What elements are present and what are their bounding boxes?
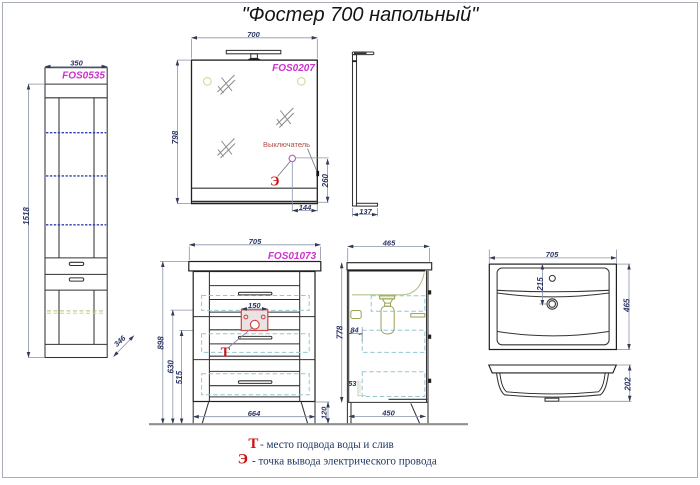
- svg-text:705: 705: [546, 250, 559, 259]
- svg-text:350: 350: [70, 59, 83, 68]
- svg-text:515: 515: [175, 370, 184, 384]
- svg-text:Т: Т: [221, 346, 231, 361]
- svg-text:137: 137: [359, 207, 372, 216]
- svg-text:120: 120: [320, 406, 329, 419]
- svg-text:705: 705: [249, 237, 262, 246]
- svg-text:630: 630: [166, 360, 175, 374]
- svg-text:202: 202: [623, 377, 632, 392]
- svg-text:Э: Э: [238, 452, 248, 468]
- svg-text:798: 798: [171, 130, 180, 144]
- svg-text:84: 84: [350, 325, 359, 334]
- svg-text:664: 664: [248, 409, 261, 418]
- svg-text:465: 465: [623, 298, 632, 313]
- svg-text:Выключатель: Выключатель: [263, 140, 310, 149]
- svg-text:150: 150: [248, 301, 261, 310]
- svg-text:778: 778: [335, 325, 344, 339]
- svg-text:- место подвода воды и слив: - место подвода воды и слив: [260, 439, 394, 451]
- svg-text:215: 215: [536, 277, 545, 292]
- svg-text:1518: 1518: [22, 207, 31, 225]
- svg-text:700: 700: [247, 30, 260, 39]
- svg-text:144: 144: [299, 203, 312, 212]
- svg-text:898: 898: [156, 336, 165, 350]
- svg-text:Э: Э: [270, 174, 279, 189]
- svg-text:53: 53: [348, 379, 357, 388]
- svg-text:Т: Т: [248, 436, 258, 452]
- svg-text:FOS0535: FOS0535: [62, 70, 105, 81]
- svg-text:465: 465: [382, 239, 396, 248]
- svg-text:FOS0207: FOS0207: [272, 63, 315, 74]
- svg-text:- точка вывода электрического: - точка вывода электрического провода: [252, 456, 437, 468]
- svg-text:260: 260: [321, 173, 330, 188]
- svg-text:450: 450: [381, 409, 395, 418]
- svg-text:FOS01073: FOS01073: [268, 251, 317, 262]
- svg-text:"Фостер 700 напольный": "Фостер 700 напольный": [242, 4, 480, 26]
